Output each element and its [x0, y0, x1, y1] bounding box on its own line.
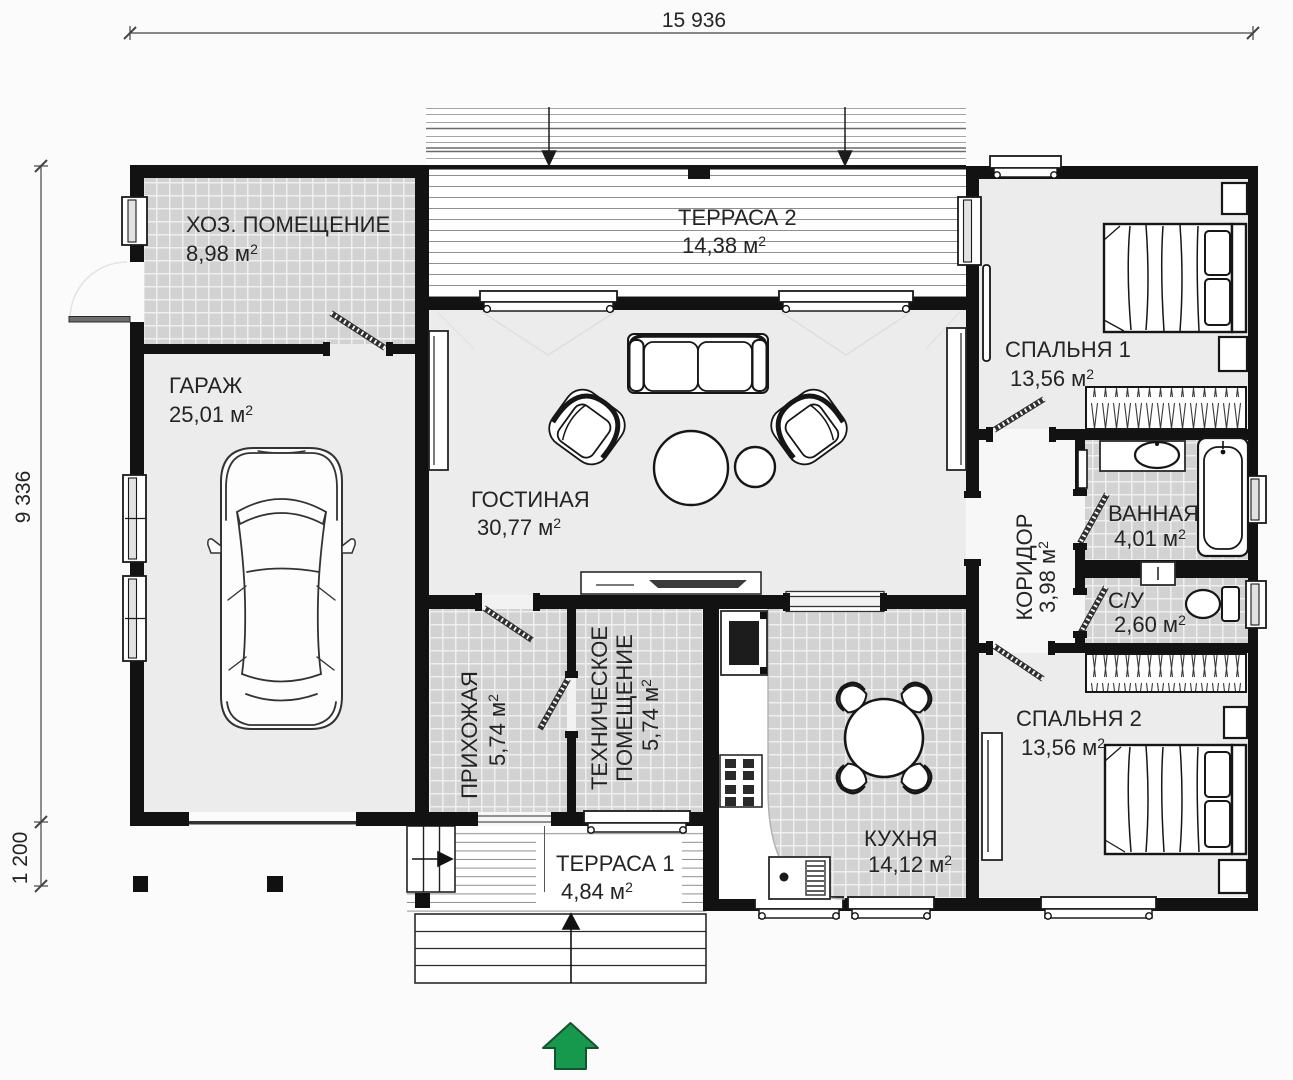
svg-text:ТЕРРАСА 2: ТЕРРАСА 2: [678, 205, 797, 230]
svg-text:5,74 м2: 5,74 м2: [638, 679, 663, 751]
svg-text:3,98 м2: 3,98 м2: [1035, 541, 1060, 613]
svg-text:ПОМЕЩЕНИЕ: ПОМЕЩЕНИЕ: [612, 634, 637, 782]
svg-text:С/У: С/У: [1108, 588, 1145, 613]
svg-text:14,12 м2: 14,12 м2: [868, 852, 952, 877]
svg-text:30,77 м2: 30,77 м2: [477, 515, 561, 540]
svg-text:14,38 м2: 14,38 м2: [682, 233, 766, 258]
svg-text:ПРИХОЖАЯ: ПРИХОЖАЯ: [457, 671, 482, 799]
svg-text:13,56 м2: 13,56 м2: [1021, 735, 1105, 760]
svg-text:ГАРАЖ: ГАРАЖ: [169, 373, 243, 398]
svg-text:15 936: 15 936: [662, 9, 726, 32]
svg-text:9 336: 9 336: [12, 471, 35, 524]
svg-text:СПАЛЬНЯ 1: СПАЛЬНЯ 1: [1005, 337, 1131, 362]
svg-text:ТЕРРАСА 1: ТЕРРАСА 1: [556, 851, 675, 876]
svg-text:4,84 м2: 4,84 м2: [561, 879, 633, 904]
svg-text:25,01 м2: 25,01 м2: [169, 402, 253, 427]
svg-text:ВАННАЯ: ВАННАЯ: [1108, 501, 1199, 526]
svg-text:4,01 м2: 4,01 м2: [1114, 526, 1186, 551]
svg-text:8,98 м2: 8,98 м2: [186, 241, 258, 266]
svg-text:ГОСТИНАЯ: ГОСТИНАЯ: [471, 487, 590, 512]
svg-text:13,56 м2: 13,56 м2: [1010, 366, 1094, 391]
svg-text:ТЕХНИЧЕСКОЕ: ТЕХНИЧЕСКОЕ: [587, 626, 612, 790]
svg-text:ХОЗ. ПОМЕЩЕНИЕ: ХОЗ. ПОМЕЩЕНИЕ: [186, 212, 390, 237]
svg-text:1 200: 1 200: [9, 832, 32, 885]
svg-text:СПАЛЬНЯ 2: СПАЛЬНЯ 2: [1016, 706, 1142, 731]
svg-text:2,60 м2: 2,60 м2: [1114, 612, 1186, 637]
svg-text:КУХНЯ: КУХНЯ: [864, 826, 938, 851]
svg-text:КОРИДОР: КОРИДОР: [1012, 514, 1037, 621]
svg-text:5,74 м2: 5,74 м2: [485, 694, 510, 766]
